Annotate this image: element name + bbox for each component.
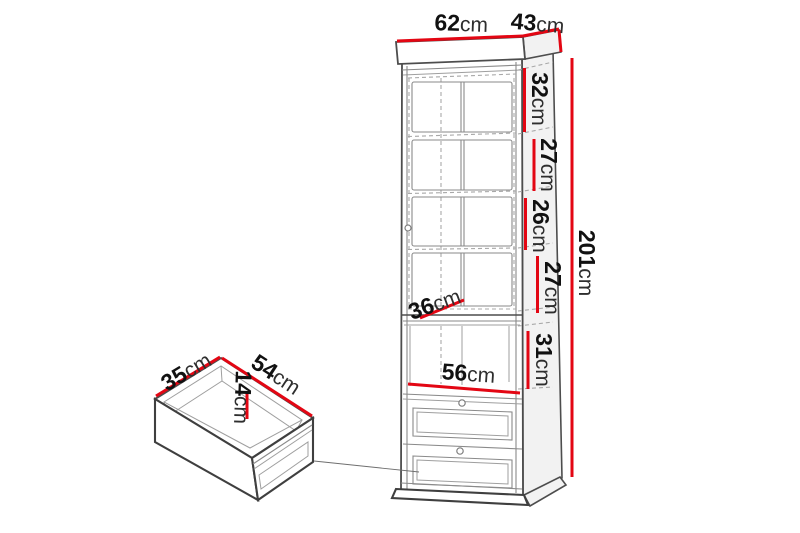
label-section-2: 27cm <box>536 138 562 192</box>
label-total-height: 201cm <box>574 230 600 296</box>
furniture-dimension-diagram: 62cm 43cm 201cm 32cm 27cm 26cm 27cm 31cm… <box>0 0 800 533</box>
label-section-3: 26cm <box>528 199 554 253</box>
drawer-knob-bottom <box>457 448 463 454</box>
label-section-1: 32cm <box>527 72 553 126</box>
drawer-knob-top <box>459 400 465 406</box>
label-drawer-height: 14cm <box>229 370 257 424</box>
cabinet-front-face <box>401 58 523 496</box>
label-section-4: 27cm <box>540 261 566 315</box>
diagram-svg: 62cm 43cm 201cm 32cm 27cm 26cm 27cm 31cm… <box>0 0 800 533</box>
label-section-5: 31cm <box>531 333 557 387</box>
door-knob <box>405 225 411 231</box>
label-top-width: 62cm <box>434 9 488 37</box>
label-top-depth: 43cm <box>510 8 566 39</box>
